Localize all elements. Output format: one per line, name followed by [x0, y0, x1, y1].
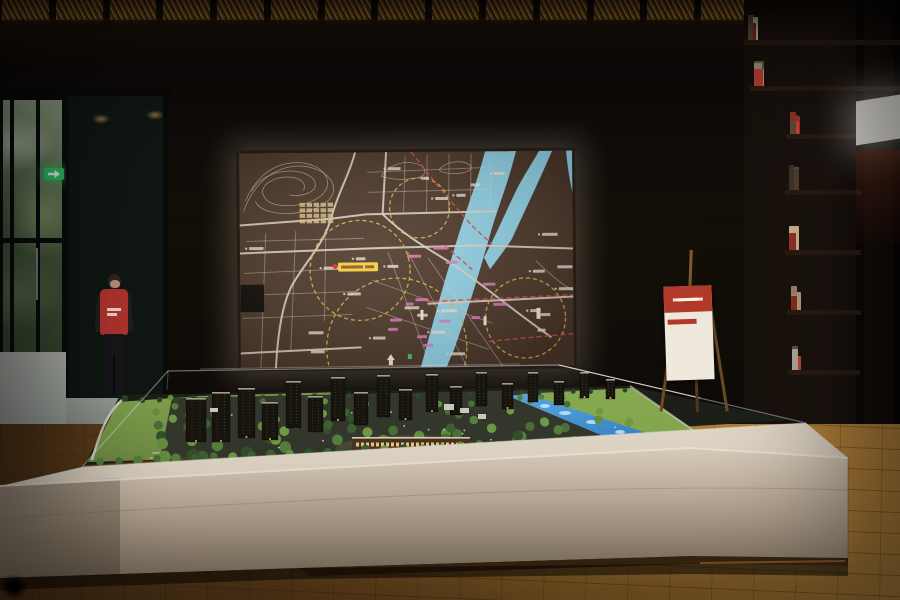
model-tree: [517, 395, 523, 401]
tower-slab: [554, 381, 564, 405]
tower-roof: [528, 372, 538, 374]
shelf-board: [787, 310, 861, 315]
bookshelf-shelf: [748, 10, 894, 40]
shelf-board: [785, 250, 861, 255]
foreground-shadow-object: [0, 535, 70, 600]
tower-base-light: [405, 418, 407, 420]
back-tree: [623, 388, 628, 393]
tower-roof: [554, 381, 564, 383]
back-tree: [174, 397, 179, 402]
downlight-glow: [88, 112, 114, 126]
sign-header: [663, 285, 712, 313]
ceiling-panel: [540, 0, 587, 20]
tower-slab: [286, 381, 301, 428]
model-tree: [157, 438, 168, 449]
ceiling-panel: [2, 0, 49, 20]
tower-roof: [450, 386, 462, 388]
model-light: [490, 439, 492, 441]
tower-roof: [308, 396, 323, 398]
vest-text-blur: [107, 308, 121, 311]
model-tree: [625, 418, 634, 427]
tower-base-light: [610, 397, 612, 399]
bookshelf-shelf: [789, 160, 856, 190]
tower-roof: [262, 402, 278, 404]
hedge-tree: [153, 455, 160, 462]
sign-footer-bar: [668, 319, 697, 325]
hedge-tree: [96, 458, 104, 466]
door-mullion: [36, 96, 40, 358]
panel-warm-reflection: [856, 150, 900, 245]
model-tree: [470, 416, 479, 425]
illuminated-panel: [856, 95, 900, 146]
book-spine: [754, 69, 763, 86]
tower-base-light: [220, 440, 222, 442]
shelf-board: [785, 190, 862, 195]
ceiling-panel: [325, 0, 372, 20]
model-tree: [538, 394, 544, 400]
door-frame: [0, 96, 3, 358]
sign-header-text-blur: [678, 297, 698, 301]
map-graphic: [239, 151, 574, 369]
shelf-board: [786, 134, 862, 139]
ceiling-panel: [701, 0, 748, 20]
tower-slab: [580, 372, 589, 398]
model-light: [463, 430, 465, 432]
tower-base-light: [269, 438, 271, 440]
tower-roof: [186, 398, 206, 400]
exit-sign: [44, 168, 64, 180]
back-tree: [122, 395, 128, 401]
model-light: [351, 412, 353, 414]
tower-roof: [377, 375, 390, 377]
door-rail: [0, 238, 70, 243]
model-tree: [152, 408, 160, 416]
tower-base-light: [246, 436, 248, 438]
tower-slab: [476, 372, 487, 406]
ceiling-panel: [432, 0, 479, 20]
model-light: [462, 433, 464, 435]
model-tree: [596, 408, 603, 415]
model-tree: [169, 415, 177, 423]
downlight-glow: [142, 108, 168, 122]
info-sign: [663, 285, 714, 381]
back-tree: [347, 393, 352, 398]
tower-roof: [331, 377, 345, 379]
screen-sheen: [239, 151, 574, 369]
book-spine: [790, 120, 796, 134]
shelf-board: [750, 86, 900, 91]
model-light: [231, 414, 233, 416]
red-vest: [100, 289, 128, 335]
tower-slab: [606, 379, 615, 399]
model-tree: [172, 403, 179, 410]
bookshelf-shelf: [790, 104, 856, 134]
tower-roof: [606, 379, 615, 381]
tower-slab: [186, 398, 206, 442]
model-tree: [362, 427, 372, 437]
ceiling-panel: [56, 0, 103, 20]
model-tree: [332, 435, 343, 446]
tower-base-light: [337, 419, 339, 421]
ceiling-panel: [647, 0, 694, 20]
tower-slab: [308, 396, 323, 432]
model-tree: [154, 421, 163, 430]
location-map-screen: [236, 148, 577, 372]
back-tree: [519, 390, 524, 395]
book-spine: [791, 296, 797, 310]
model-tree: [324, 420, 333, 429]
shelf-board: [744, 40, 900, 45]
tower-base-light: [584, 396, 586, 398]
bookshelf-shelf: [791, 280, 855, 310]
model-tree: [468, 400, 475, 407]
tower-slab: [354, 392, 368, 425]
tower-slab: [212, 392, 230, 442]
model-light: [614, 426, 616, 428]
back-tree: [277, 394, 282, 399]
tower-roof: [426, 374, 438, 376]
model-light: [428, 429, 430, 431]
tower-roof: [502, 383, 513, 385]
tower-roof: [286, 381, 301, 383]
bookshelf-shelf: [789, 220, 855, 250]
model-tree: [553, 425, 563, 435]
ceiling-panel: [594, 0, 641, 20]
model-light: [278, 447, 280, 449]
model-tree: [513, 430, 523, 440]
tower-roof: [476, 372, 487, 374]
tower-roof: [212, 392, 230, 394]
tower-base-light: [195, 440, 197, 442]
hedge-tree: [115, 457, 123, 465]
model-tree: [564, 401, 571, 408]
ceiling-panel: [217, 0, 264, 20]
tower-slab: [331, 377, 345, 421]
exit-pictogram: [48, 170, 60, 178]
model-tree: [446, 423, 455, 432]
tower-slab: [502, 383, 513, 409]
tower-slab: [399, 389, 412, 420]
book-spine: [789, 165, 794, 190]
vest-text-blur: [107, 313, 117, 316]
tower-slab: [377, 375, 390, 417]
ceiling-woven-panels: [0, 0, 748, 20]
ceiling-panel: [378, 0, 425, 20]
model-tree: [487, 424, 496, 433]
tower-base-light: [431, 410, 433, 412]
ceiling-panel: [486, 0, 533, 20]
tower-slab: [238, 388, 255, 438]
back-tree: [157, 397, 162, 402]
model-tree: [540, 417, 549, 426]
book-spine: [748, 16, 753, 40]
back-tree: [467, 392, 472, 397]
door-mullion: [10, 96, 14, 358]
book-spine: [789, 233, 796, 250]
back-tree: [415, 393, 421, 399]
person-face: [110, 280, 120, 288]
tower-slab: [528, 372, 538, 402]
model-tree: [168, 395, 174, 401]
door-handle: [36, 248, 38, 300]
tower-roof: [238, 388, 255, 390]
model-light: [390, 411, 392, 413]
model-light: [322, 440, 324, 442]
sign-right-column: [690, 314, 709, 315]
model-tree: [388, 425, 398, 435]
sign-left-column: [667, 315, 686, 316]
showroom-photo: Real-estate sales gallery: illuminated c…: [0, 0, 900, 600]
back-tree: [571, 389, 576, 394]
tower-slab: [426, 374, 438, 412]
tower-slab: [262, 402, 278, 440]
ceiling-panel: [110, 0, 157, 20]
model-light: [403, 425, 405, 427]
ceiling-panel: [271, 0, 318, 20]
model-tree: [594, 416, 602, 424]
tower-base-light: [507, 407, 509, 409]
tower-roof: [354, 392, 368, 394]
model-light: [443, 429, 445, 431]
model-table-scene: [0, 350, 900, 600]
ceiling-panel: [163, 0, 210, 20]
model-tree: [525, 422, 534, 431]
tower-roof: [399, 389, 412, 391]
ceiling-glow-falloff: [0, 18, 760, 78]
bookshelf-shelf: [754, 56, 894, 86]
